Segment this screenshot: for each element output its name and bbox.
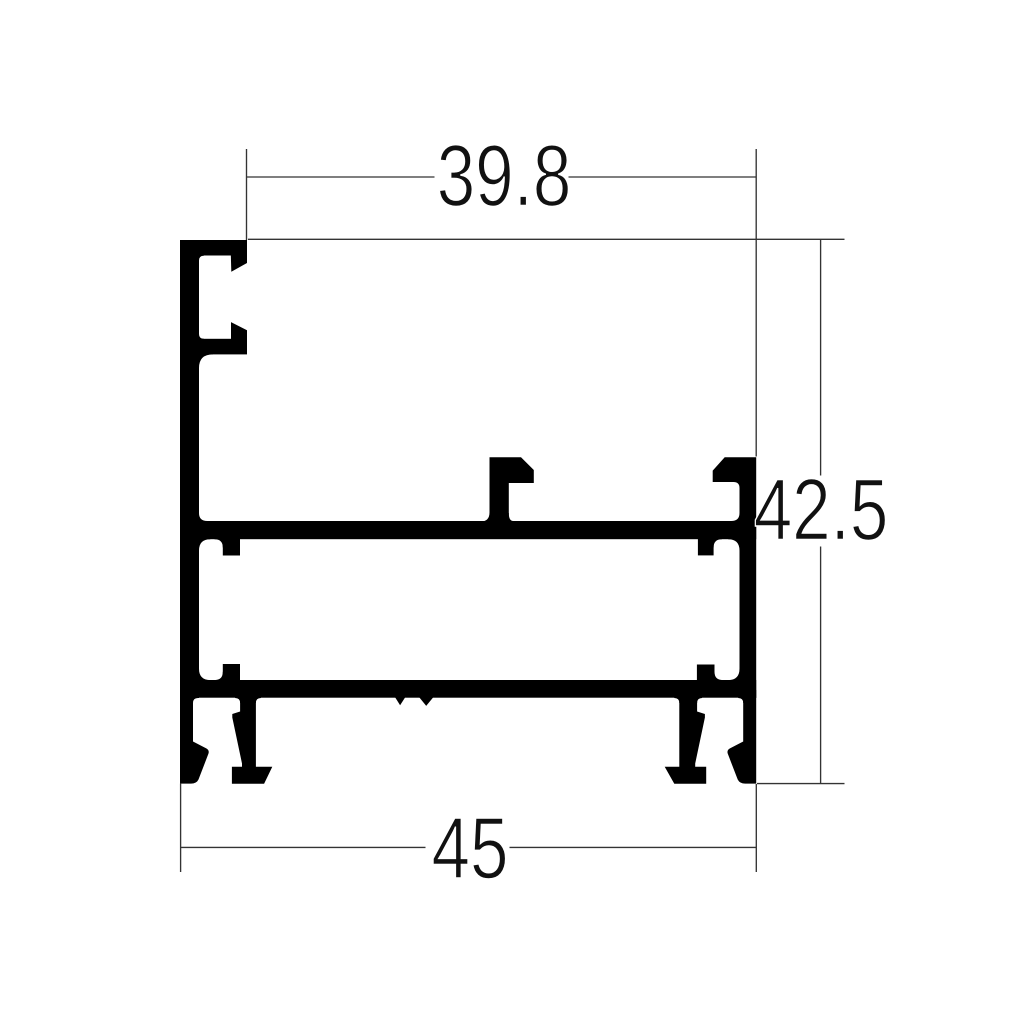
- svg-text:39.8: 39.8: [437, 127, 572, 224]
- svg-text:42.5: 42.5: [754, 461, 889, 558]
- svg-text:45: 45: [432, 799, 509, 896]
